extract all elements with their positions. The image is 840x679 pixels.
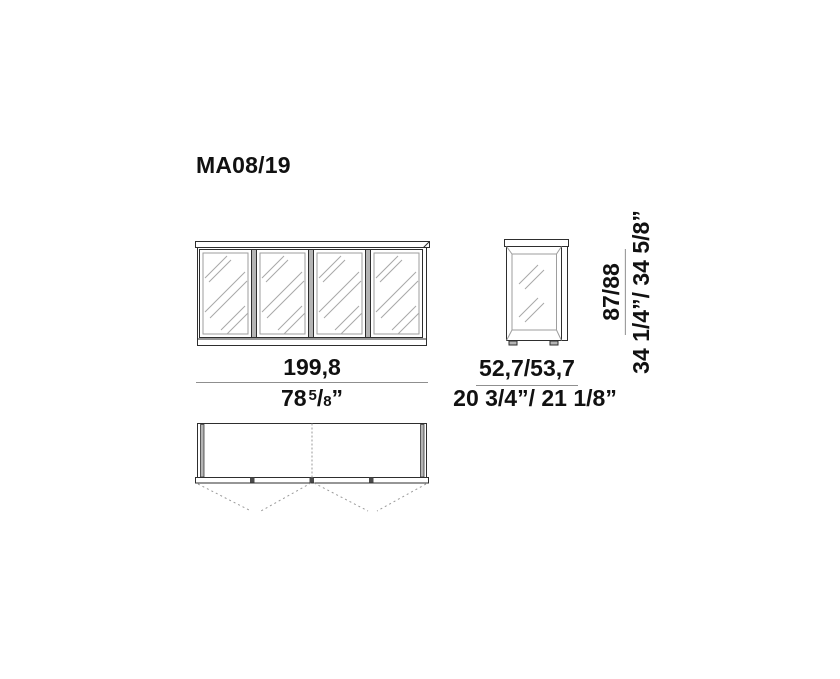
fraction-denominator: 8 bbox=[323, 393, 331, 410]
front-mullion bbox=[309, 250, 314, 338]
imperial-whole: 78 bbox=[281, 385, 307, 411]
side-foot bbox=[509, 341, 517, 345]
side-view-drawing bbox=[505, 240, 569, 346]
front-width-metric: 199,8 bbox=[196, 355, 428, 383]
side-top-panel bbox=[505, 240, 569, 247]
door-swing-line bbox=[261, 483, 311, 511]
front-width-dimension: 199,8 78 5/8” bbox=[196, 355, 428, 410]
plan-side-panel-right bbox=[421, 425, 425, 478]
front-view-drawing bbox=[196, 242, 430, 346]
height-imperial-value: 34 1/4”/ 34 5/8” bbox=[629, 210, 653, 374]
front-width-imperial: 78 5/8” bbox=[196, 386, 428, 410]
technical-drawing-page: MA08/19 bbox=[0, 0, 840, 679]
side-foot bbox=[550, 341, 558, 345]
height-dimension: 87/88 34 1/4”/ 34 5/8” bbox=[599, 182, 653, 402]
side-depth-dimension-metric: 52,7/53,7 bbox=[427, 355, 627, 386]
fraction-numerator: 5 bbox=[308, 387, 316, 404]
front-mullion bbox=[252, 250, 257, 338]
furniture-line-drawing bbox=[0, 0, 840, 679]
side-body-outline bbox=[507, 247, 568, 341]
plan-hinge-tick bbox=[250, 478, 255, 483]
front-mullion bbox=[366, 250, 371, 338]
plan-hinge-tick bbox=[369, 478, 374, 483]
door-swing-line bbox=[198, 484, 251, 511]
side-depth-metric-value: 52,7/53,7 bbox=[476, 355, 578, 386]
plan-hinge-tick bbox=[310, 478, 315, 483]
door-swing-line bbox=[314, 483, 368, 511]
door-swing-line bbox=[377, 484, 426, 511]
height-metric-value: 87/88 bbox=[599, 249, 626, 335]
door-swing-lines bbox=[198, 483, 426, 511]
front-top-panel bbox=[196, 242, 430, 248]
plan-view-drawing bbox=[196, 424, 429, 512]
plan-side-panel-left bbox=[201, 425, 205, 478]
inch-mark: ” bbox=[332, 385, 344, 411]
